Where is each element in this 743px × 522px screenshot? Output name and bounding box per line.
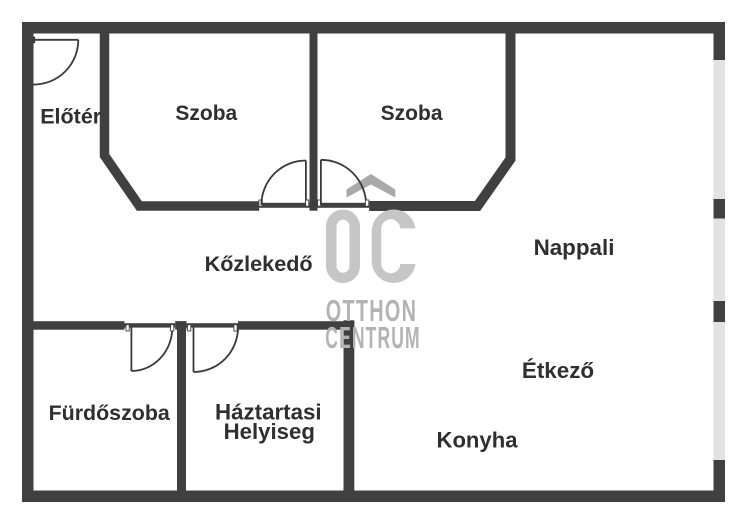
svg-text:Szoba: Szoba <box>381 102 443 125</box>
svg-text:Konyha: Konyha <box>436 428 518 453</box>
svg-text:Nappali: Nappali <box>534 235 615 260</box>
svg-text:Szoba: Szoba <box>175 102 237 125</box>
svg-text:Helyiseg: Helyiseg <box>224 419 315 444</box>
svg-text:Étkező: Étkező <box>522 358 594 383</box>
svg-text:Kőzlekedő: Kőzlekedő <box>205 251 313 276</box>
svg-text:Előtér: Előtér <box>40 105 102 129</box>
svg-text:CENTRUM: CENTRUM <box>325 321 420 355</box>
svg-text:Fürdőszoba: Fürdőszoba <box>49 401 171 425</box>
